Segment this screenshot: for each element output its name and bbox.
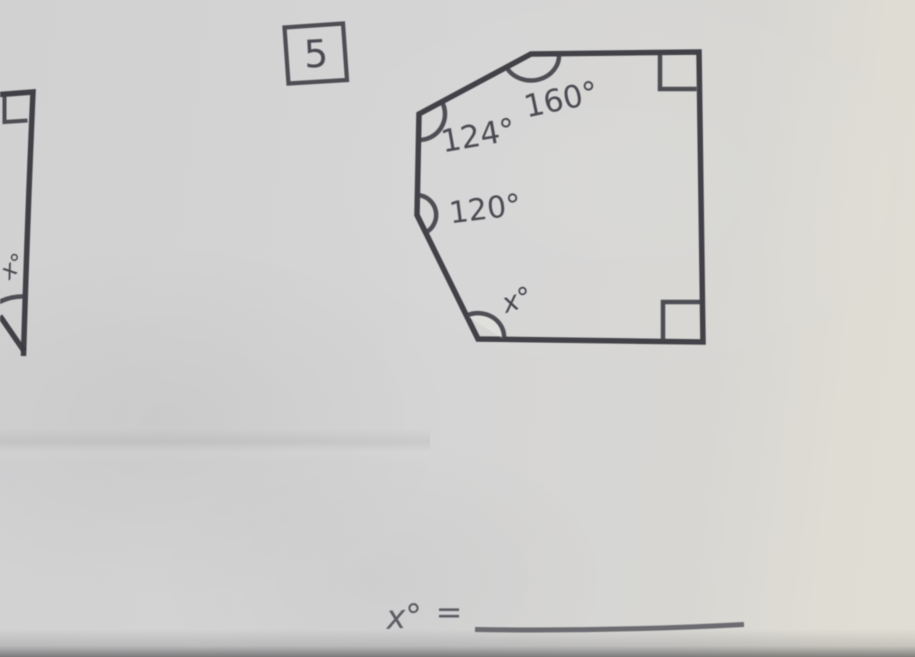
- hexagon-right-angle-bottom-icon: [663, 302, 700, 341]
- answer-variable-label: x°: [384, 596, 423, 637]
- worksheet-photo: x° 5 160° 124° 120° x° x° =: [0, 0, 915, 657]
- left-figure-right-angle-icon: [5, 96, 28, 123]
- answer-area: x° =: [384, 593, 744, 637]
- left-figure-bottom-edge: [0, 316, 24, 351]
- hexagon-right-angle-top-icon: [660, 55, 697, 90]
- hexagon-angle-bottom-label: x°: [497, 281, 536, 320]
- answer-blank-line: [475, 625, 744, 630]
- hexagon-figure: 160° 124° 120° x°: [417, 52, 703, 342]
- hexagon-arc-160: [507, 54, 560, 80]
- left-partial-figure: x°: [0, 92, 33, 356]
- hexagon-angle-upper-left-label: 124°: [438, 112, 518, 160]
- answer-equals-sign: =: [436, 593, 463, 631]
- worksheet-figure-canvas: x° 5 160° 124° 120° x° x° =: [0, 0, 915, 657]
- problem-number: 5: [303, 31, 329, 76]
- hexagon-angle-left-label: 120°: [447, 188, 523, 232]
- problem-number-box: 5: [285, 24, 348, 84]
- left-figure-edges: [0, 92, 33, 356]
